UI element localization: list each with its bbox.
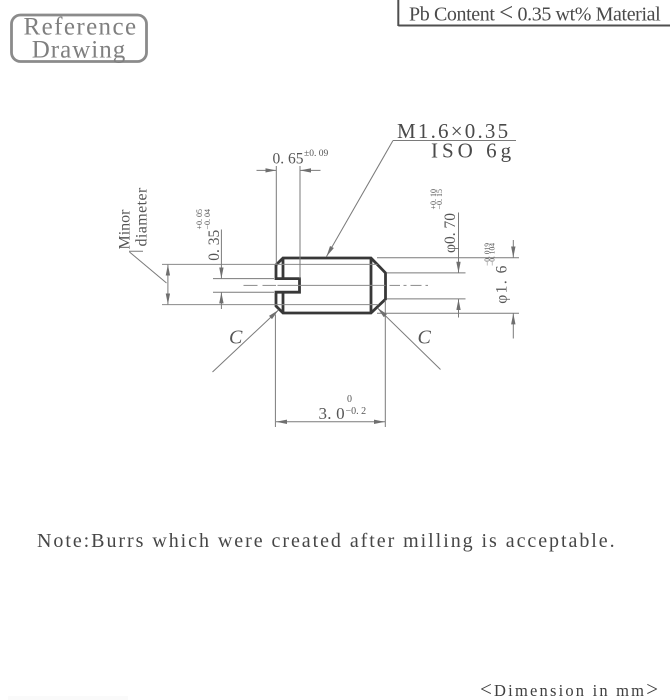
svg-text:Pb Content < 0.35 wt% Material: Pb Content < 0.35 wt% Material (409, 0, 661, 27)
svg-text:−0. 15: −0. 15 (435, 189, 444, 210)
svg-text:ISO 6g: ISO 6g (431, 139, 515, 163)
svg-text:φ0. 70: φ0. 70 (442, 213, 459, 253)
svg-text:Minor: Minor (117, 209, 134, 250)
svg-text:0. 35: 0. 35 (206, 229, 223, 260)
svg-text:−0. 2: −0. 2 (346, 406, 367, 417)
svg-text:<Dimension in mm>: <Dimension in mm> (480, 677, 660, 700)
svg-text:φ1. 6: φ1. 6 (494, 264, 511, 304)
svg-text:C: C (418, 327, 432, 349)
svg-text:0: 0 (347, 394, 352, 405)
svg-text:±0. 09: ±0. 09 (304, 149, 328, 159)
svg-text:−0. 04: −0. 04 (203, 209, 212, 230)
svg-text:−0. 104: −0. 104 (488, 243, 497, 266)
svg-text:Drawing: Drawing (32, 37, 126, 64)
svg-text:0. 65: 0. 65 (273, 151, 304, 168)
svg-text:3. 0: 3. 0 (319, 404, 345, 423)
svg-text:diameter: diameter (134, 187, 151, 246)
svg-text:Note:Burrs which were created: Note:Burrs which were created after mill… (37, 530, 617, 552)
svg-text:C: C (229, 327, 243, 349)
